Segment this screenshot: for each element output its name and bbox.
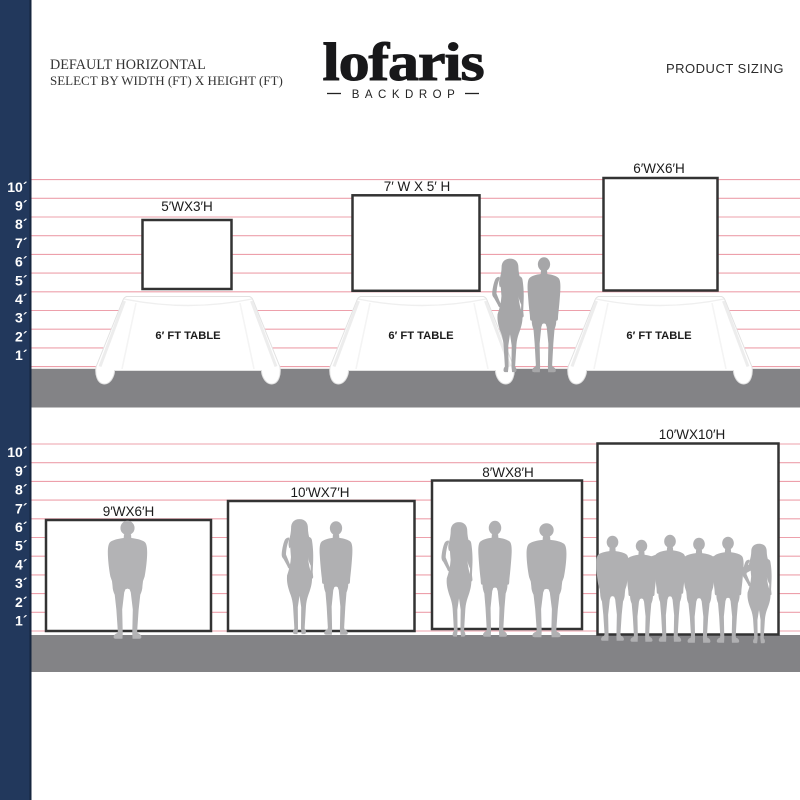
svg-text:10′WX7′H: 10′WX7′H xyxy=(290,485,349,500)
svg-text:SELECT BY WIDTH (FT) X HEIGHT: SELECT BY WIDTH (FT) X HEIGHT (FT) xyxy=(50,73,283,88)
svg-text:9´: 9´ xyxy=(15,463,28,479)
svg-text:2´: 2´ xyxy=(15,594,28,610)
svg-text:4´: 4´ xyxy=(15,291,28,307)
svg-text:2´: 2´ xyxy=(15,328,28,344)
svg-text:8´: 8´ xyxy=(15,216,28,232)
svg-text:5′WX3′H: 5′WX3′H xyxy=(161,199,213,214)
svg-text:8′WX8′H: 8′WX8′H xyxy=(482,465,534,480)
svg-text:PRODUCT SIZING: PRODUCT SIZING xyxy=(666,61,784,76)
svg-text:6´: 6´ xyxy=(15,519,28,535)
svg-text:7´: 7´ xyxy=(15,235,28,251)
svg-text:6´: 6´ xyxy=(15,254,28,270)
svg-text:3´: 3´ xyxy=(15,310,28,326)
svg-text:5´: 5´ xyxy=(15,272,28,288)
svg-text:10´: 10´ xyxy=(7,179,28,195)
svg-text:BACKDROP: BACKDROP xyxy=(352,89,461,101)
svg-text:5´: 5´ xyxy=(15,538,28,554)
svg-text:3´: 3´ xyxy=(15,575,28,591)
svg-text:lofaris: lofaris xyxy=(323,32,484,92)
svg-text:DEFAULT HORIZONTAL: DEFAULT HORIZONTAL xyxy=(50,57,206,73)
svg-text:7´: 7´ xyxy=(15,500,28,516)
svg-text:6′WX6′H: 6′WX6′H xyxy=(633,161,685,176)
svg-text:10´: 10´ xyxy=(7,444,28,460)
svg-text:4´: 4´ xyxy=(15,556,28,572)
svg-text:1´: 1´ xyxy=(15,613,28,629)
svg-text:8´: 8´ xyxy=(15,482,28,498)
svg-text:6′ FT TABLE: 6′ FT TABLE xyxy=(155,330,221,342)
svg-text:9′WX6′H: 9′WX6′H xyxy=(103,504,155,519)
svg-text:1´: 1´ xyxy=(15,347,28,363)
svg-text:9´: 9´ xyxy=(15,198,28,214)
svg-text:7′ W X 5′ H: 7′ W X 5′ H xyxy=(384,179,451,194)
svg-text:6′ FT TABLE: 6′ FT TABLE xyxy=(388,330,454,342)
svg-text:6′ FT TABLE: 6′ FT TABLE xyxy=(626,330,692,342)
svg-text:10′WX10′H: 10′WX10′H xyxy=(659,427,726,442)
